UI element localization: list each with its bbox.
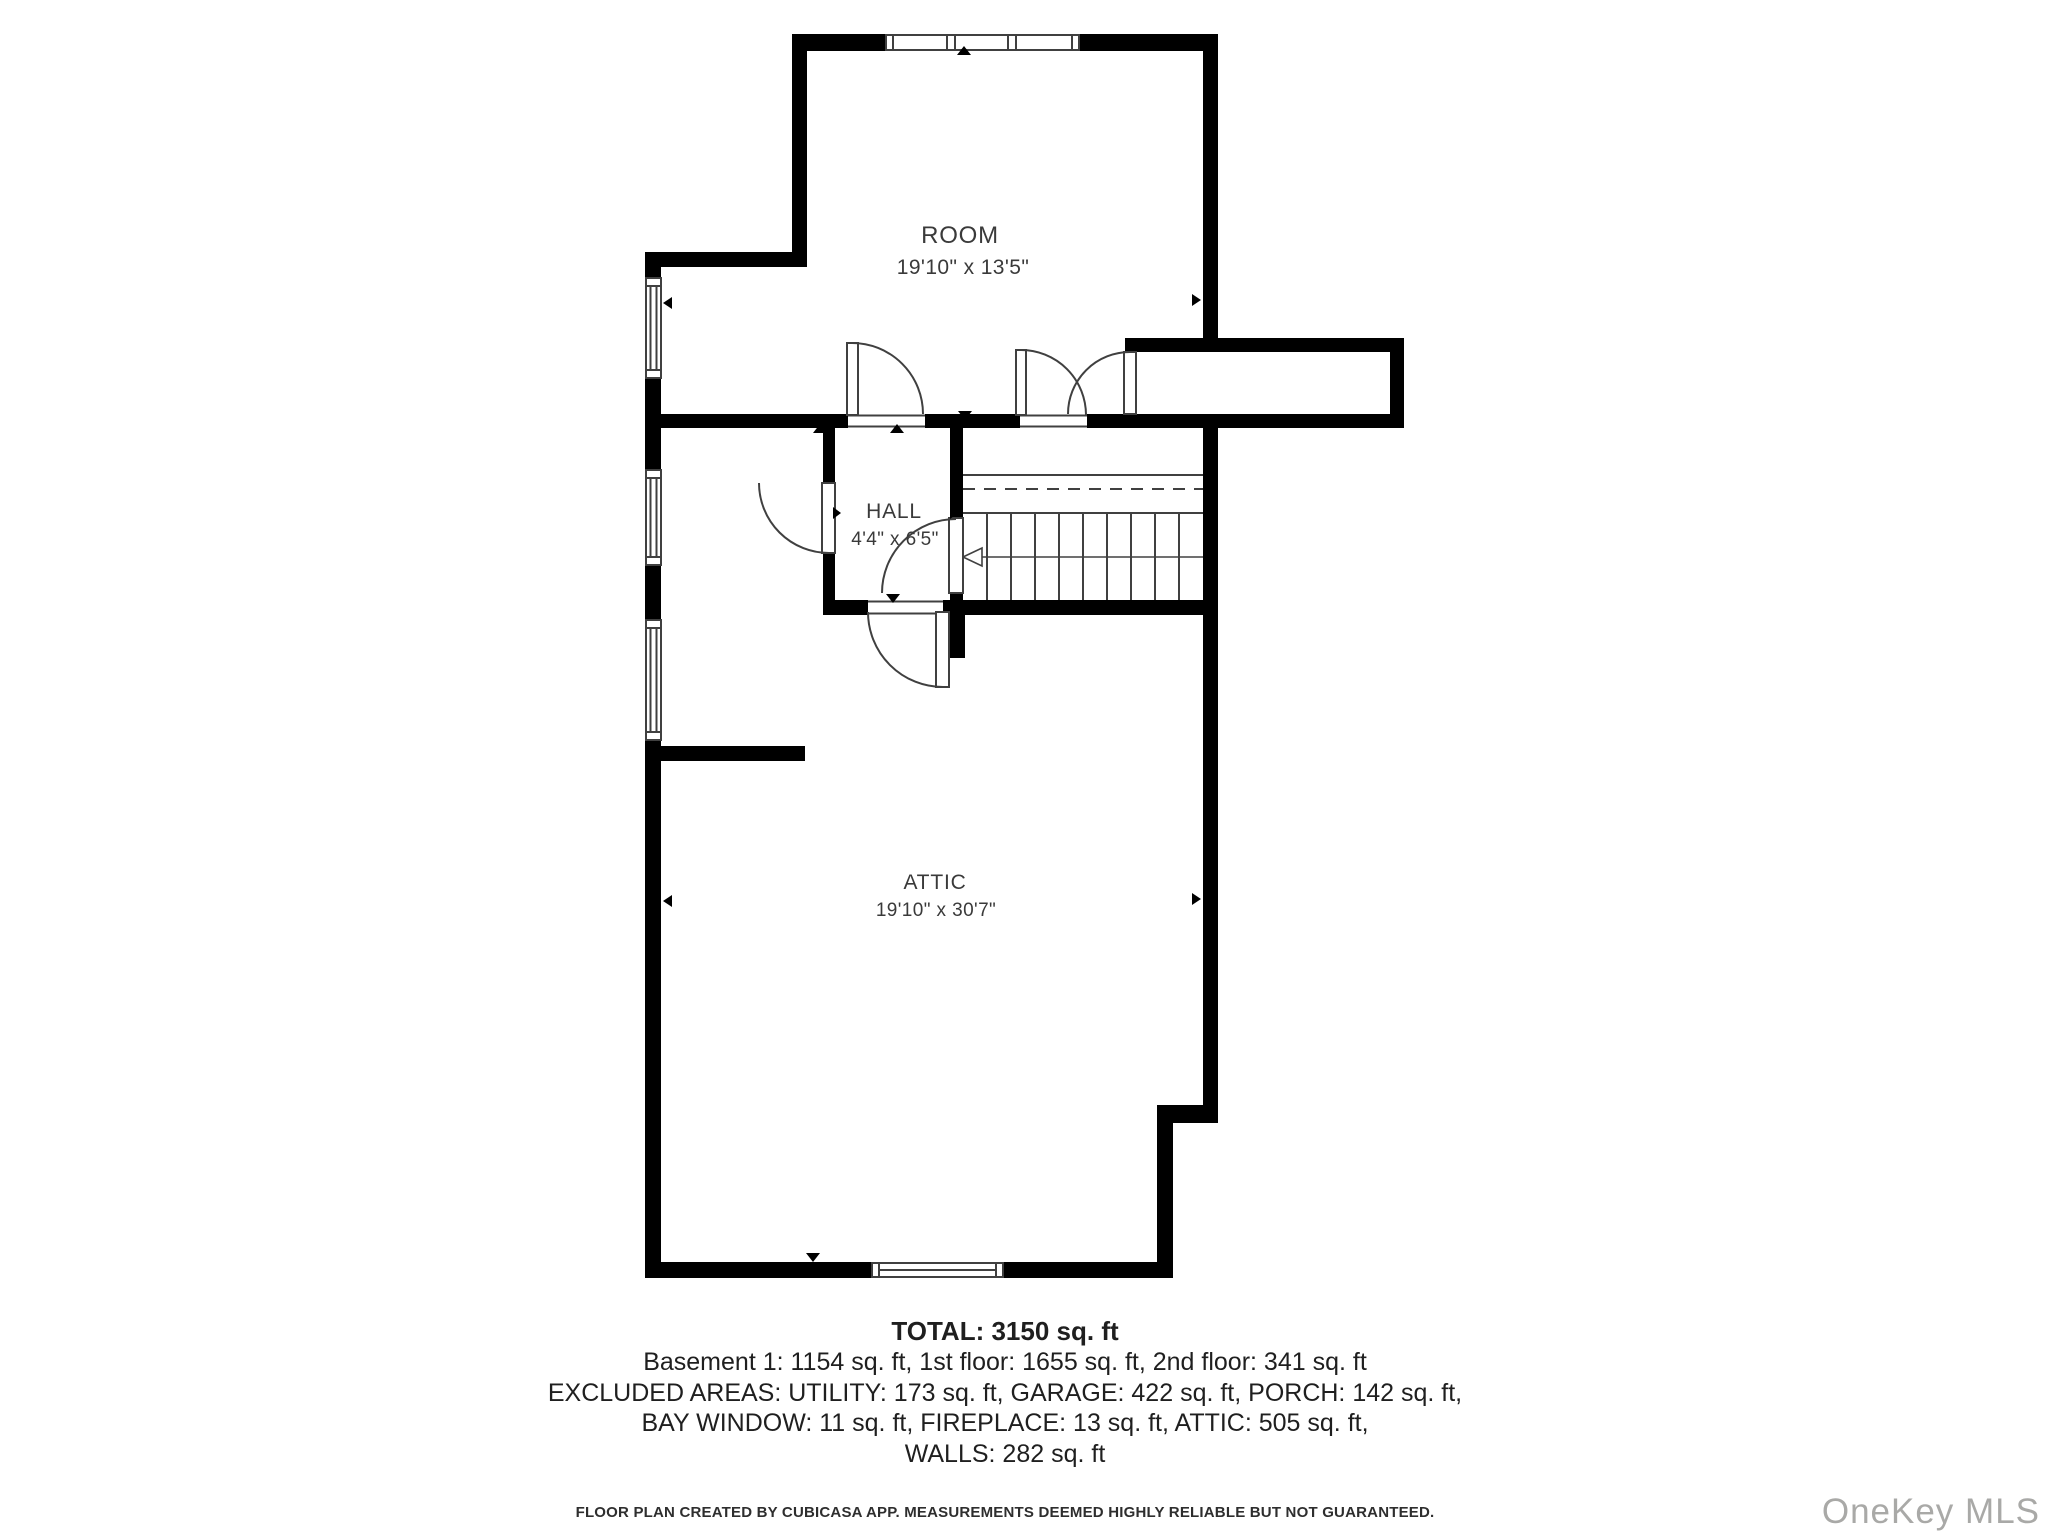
floor-areas-text: Basement 1: 1154 sq. ft, 1st floor: 1655… <box>0 1347 2010 1378</box>
wall-room-right <box>1203 34 1218 350</box>
door-hall-to-room <box>847 343 923 415</box>
wall-stub-left <box>661 746 805 761</box>
floor-plan-drawing: ROOM 19'10" x 13'5" HALL 4'4" x 6'5" ATT… <box>0 0 2048 1536</box>
wall-mid-seg3 <box>1087 414 1404 428</box>
wall-bottom-hall-seg1 <box>823 600 868 615</box>
wall-corridor-top <box>1125 338 1404 352</box>
marker-right-room-icon <box>1192 294 1201 306</box>
wall-bottom-stairs <box>943 600 1218 615</box>
doors <box>759 343 1136 687</box>
wall-bottom-seg2 <box>1003 1262 1173 1278</box>
door-hall-to-attic <box>868 612 949 687</box>
excluded-areas-line3: WALLS: 282 sq. ft <box>0 1439 2010 1470</box>
area-summary: TOTAL: 3150 sq. ft Basement 1: 1154 sq. … <box>0 1316 2010 1469</box>
room-labels: ROOM 19'10" x 13'5" HALL 4'4" x 6'5" ATT… <box>851 222 1029 921</box>
wall-step <box>645 252 807 267</box>
room-label-room: ROOM <box>921 222 999 249</box>
opening-room-hall <box>848 414 925 428</box>
windows <box>646 35 1079 1277</box>
disclaimer-text: FLOOR PLAN CREATED BY CUBICASA APP. MEAS… <box>0 1504 2010 1521</box>
wall-left-seg4 <box>645 740 661 1278</box>
wall-left-seg3 <box>645 565 661 620</box>
door-hall-left <box>759 483 835 553</box>
wall-top-right-segment <box>1079 34 1218 51</box>
opening-hall-attic <box>868 600 943 615</box>
wall-left-seg1 <box>645 252 661 278</box>
floor-plan-page: ROOM 19'10" x 13'5" HALL 4'4" x 6'5" ATT… <box>0 0 2048 1536</box>
window-left-2 <box>646 470 661 565</box>
staircase <box>963 475 1203 600</box>
marker-down-bottom-window-icon <box>806 1253 820 1262</box>
wall-mid-seg2 <box>925 414 1020 428</box>
wall-bottom-seg1 <box>645 1262 872 1278</box>
window-left-3 <box>646 620 661 740</box>
wall-room-left-upper <box>792 34 807 267</box>
room-label-attic: ATTIC <box>903 871 966 894</box>
window-bottom <box>872 1263 1003 1277</box>
opening-room-stairs <box>1020 414 1087 428</box>
marker-left-attic-icon <box>663 895 672 907</box>
excluded-areas-line1: EXCLUDED AREAS: UTILITY: 173 sq. ft, GAR… <box>0 1378 2010 1409</box>
wall-attic-right <box>1203 428 1218 1123</box>
wall-left-seg2 <box>645 378 661 470</box>
wall-lower-right <box>1157 1105 1173 1278</box>
wall-stub-stairs <box>950 615 965 658</box>
room-label-hall: HALL <box>866 500 922 523</box>
marker-right-hall-left-icon <box>833 507 841 519</box>
stair-direction-arrow-icon <box>963 548 982 566</box>
total-area-text: TOTAL: 3150 sq. ft <box>0 1316 2010 1347</box>
window-left-1 <box>646 278 661 378</box>
room-dims-attic: 19'10" x 30'7" <box>876 900 996 921</box>
watermark-onekey-mls: OneKey MLS <box>1822 1492 2040 1532</box>
room-dims-room: 19'10" x 13'5" <box>897 256 1029 279</box>
room-dims-hall: 4'4" x 6'5" <box>851 529 938 550</box>
marker-left-room-icon <box>663 297 672 309</box>
wall-hall-left-upper <box>823 428 835 483</box>
marker-right-attic-icon <box>1192 893 1201 905</box>
window-top <box>886 35 1079 50</box>
excluded-areas-line2: BAY WINDOW: 11 sq. ft, FIREPLACE: 13 sq.… <box>0 1408 2010 1439</box>
walls <box>645 34 1404 1278</box>
